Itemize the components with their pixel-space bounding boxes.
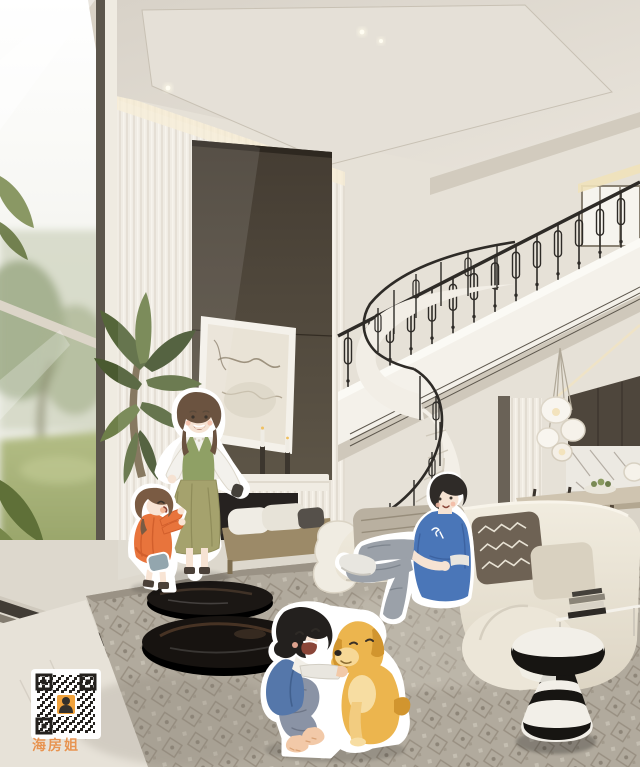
son-arm-sleeve <box>300 665 341 680</box>
screenshot-stage: 海房姐 <box>0 0 640 767</box>
dog-paw <box>350 738 366 747</box>
daughter-bag <box>147 552 171 573</box>
father-sleeve-trim <box>450 555 469 567</box>
qr-code <box>31 669 101 739</box>
bench-throw <box>297 507 325 530</box>
dog-nose <box>334 650 341 656</box>
table-decor <box>234 629 266 639</box>
mother-sandal <box>184 567 195 574</box>
window-mullion <box>96 0 105 600</box>
book-stack <box>568 588 606 619</box>
qr-avatar <box>56 694 76 715</box>
scene-illustration <box>0 0 640 767</box>
window-jamb <box>105 0 117 600</box>
garden-window <box>0 0 117 600</box>
